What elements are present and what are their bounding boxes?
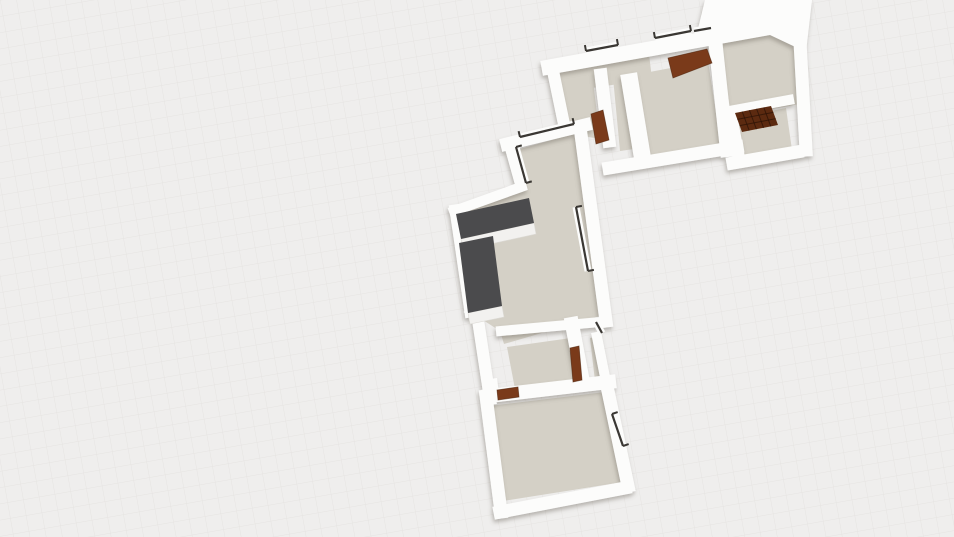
- window-frame-tick: [573, 118, 574, 124]
- window-entry-threshold[interactable]: [694, 28, 711, 31]
- wall-bath-west[interactable]: [731, 115, 739, 158]
- wall-pillar[interactable]: [483, 378, 499, 396]
- floorplan-viewport: [0, 0, 954, 537]
- window-frame-tick: [576, 206, 582, 207]
- window-frame-tick: [690, 25, 691, 31]
- floor-bottom-room[interactable]: [489, 392, 623, 501]
- window-frame-tick: [617, 39, 618, 45]
- window-frame-tick: [654, 32, 655, 38]
- window-frame-tick: [585, 45, 586, 51]
- window-frame-tick: [588, 270, 594, 271]
- window-frame-tick: [519, 131, 520, 137]
- wall-corridor-east[interactable]: [630, 82, 642, 155]
- floorplan-canvas[interactable]: [0, 0, 954, 537]
